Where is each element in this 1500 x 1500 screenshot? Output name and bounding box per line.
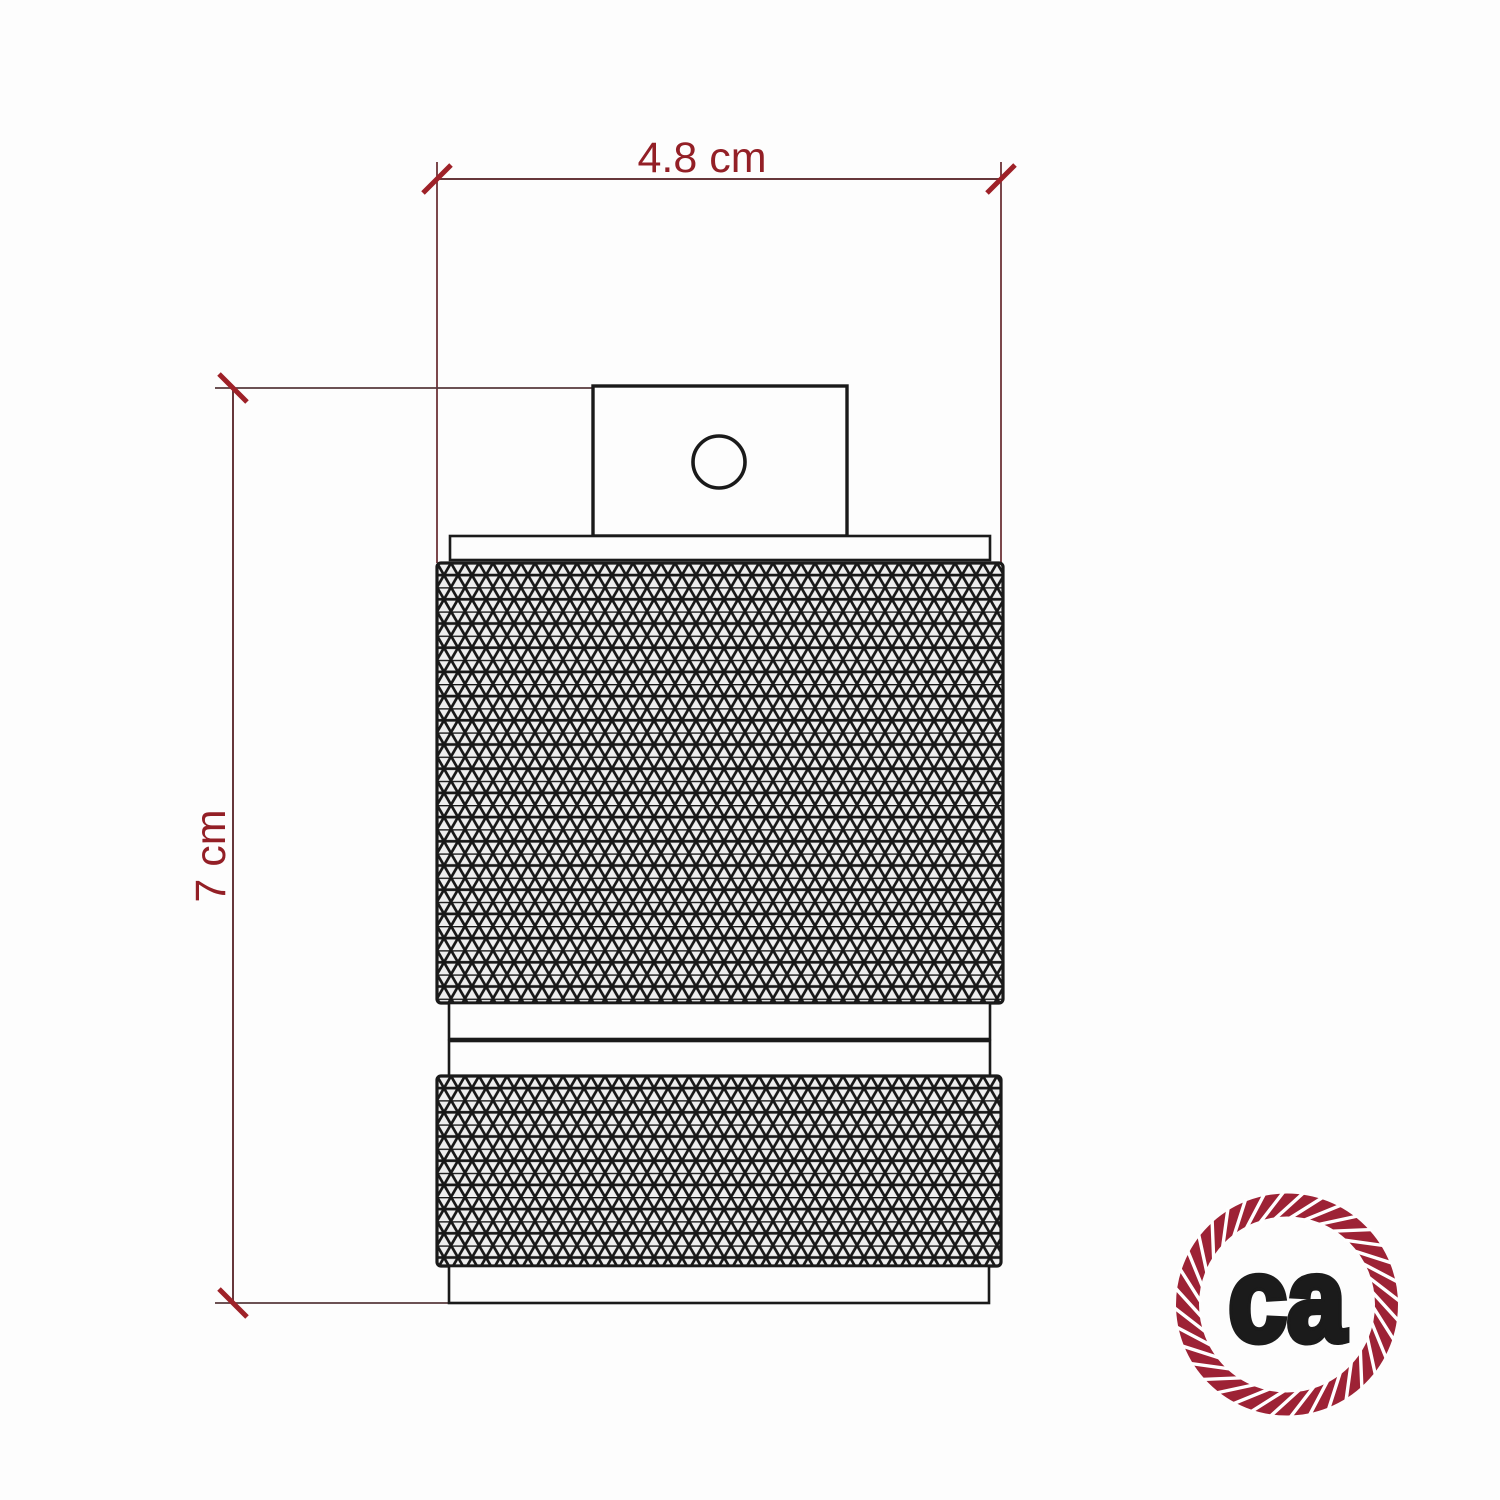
svg-text:4.8 cm: 4.8 cm <box>637 134 766 182</box>
svg-text:ca: ca <box>1228 1233 1347 1367</box>
svg-text:7 cm: 7 cm <box>187 809 235 902</box>
